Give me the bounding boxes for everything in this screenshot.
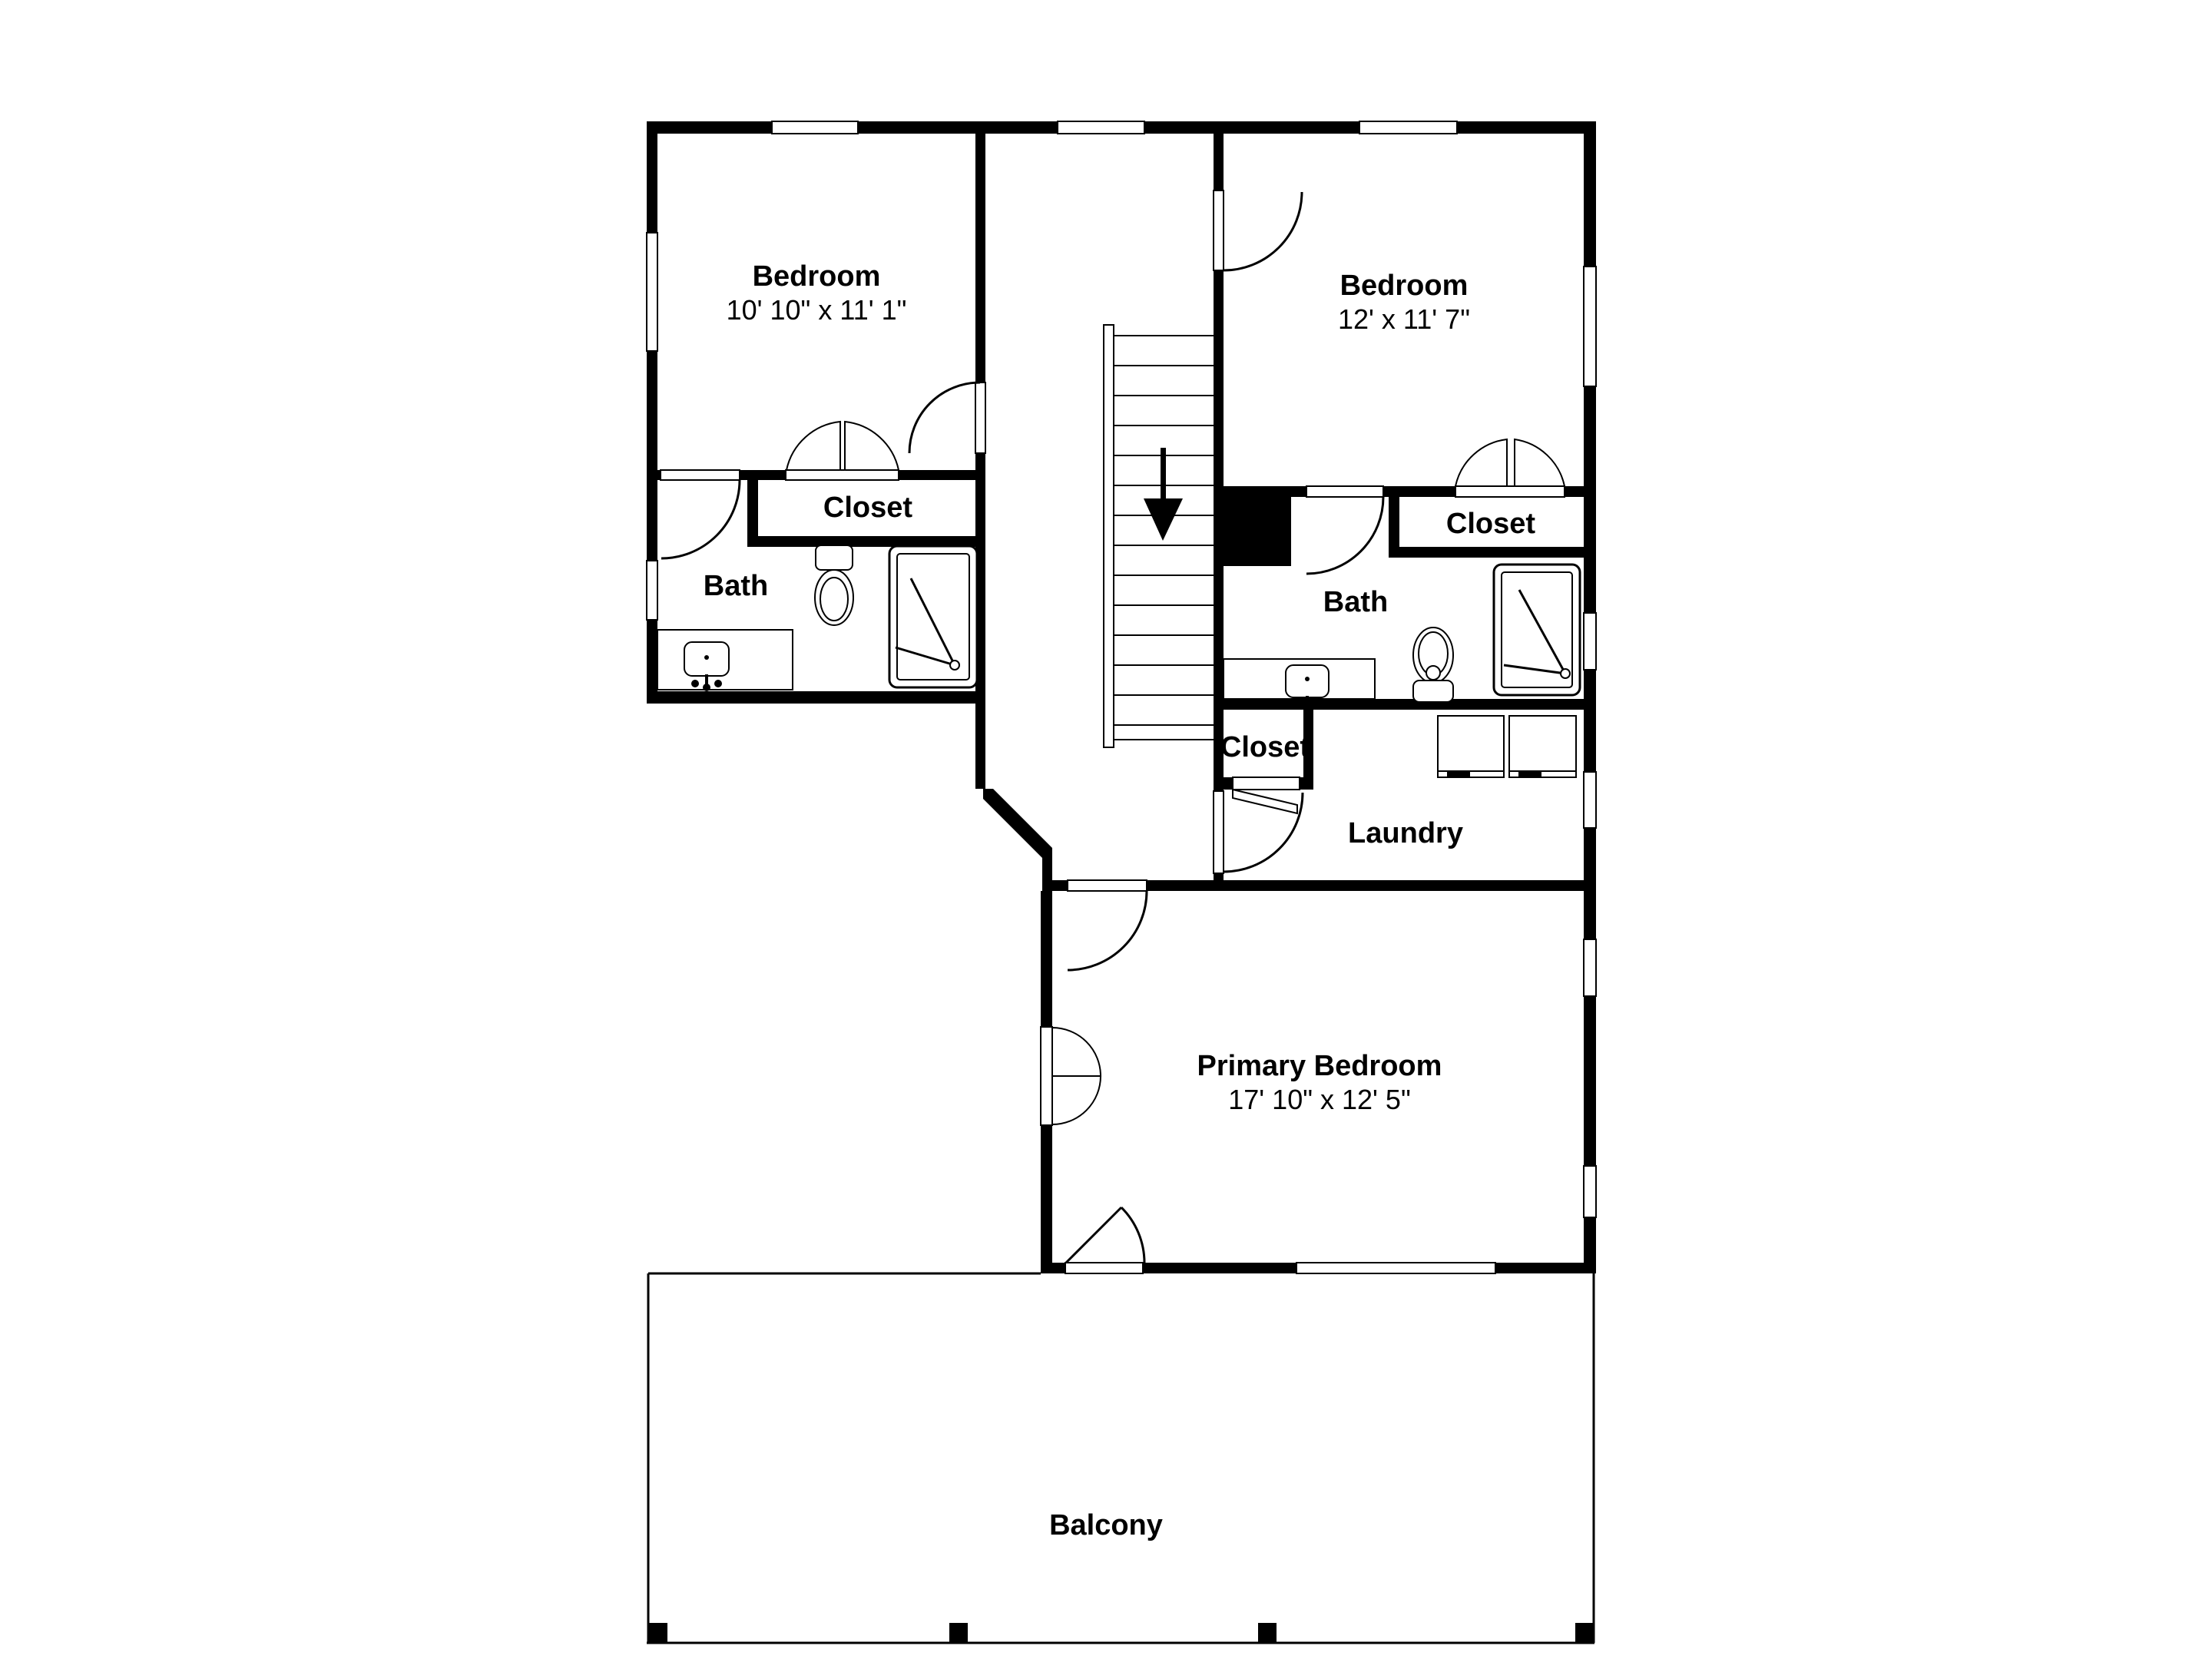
balcony-post [949, 1623, 968, 1643]
window-right-primary-upper [1584, 939, 1596, 996]
room-label-bedroom2: Bedroom [1340, 270, 1469, 302]
door-leaf-bath1 [661, 470, 740, 480]
door-leaf-balcony [1065, 1263, 1143, 1273]
door-leaf-bath2 [1306, 486, 1383, 497]
room-label-closet1: Closet [823, 492, 912, 524]
room-label-bath2: Bath [1323, 586, 1388, 618]
door-leaf-closet1 [786, 470, 899, 480]
room-dims-bedroom2: 12' x 11' 7" [1338, 303, 1470, 335]
door-leaf-laundry [1214, 791, 1224, 873]
window-bottom-primary [1296, 1263, 1495, 1273]
shower-icon [1494, 565, 1580, 695]
room-label-closet3: Closet [1220, 731, 1310, 763]
window-right-bedroom2 [1584, 267, 1596, 386]
toilet-icon [815, 545, 853, 625]
window-top-bedroom2 [1359, 121, 1457, 134]
washer-icon [1438, 716, 1504, 778]
door-leaf-bedroom1 [975, 382, 985, 453]
balcony-post [649, 1623, 667, 1643]
balcony-post [1258, 1623, 1277, 1643]
room-label-bedroom1: Bedroom [753, 260, 881, 293]
room-dims-bedroom1: 10' 10" x 11' 1" [727, 294, 907, 326]
room-label-laundry: Laundry [1348, 817, 1463, 849]
stair-stringer [1104, 325, 1114, 747]
shower-icon [889, 546, 977, 687]
dryer-icon [1509, 716, 1576, 778]
room-label-primary: Primary Bedroom [1197, 1050, 1442, 1082]
room-label-closet2: Closet [1446, 508, 1535, 540]
window-right-bath2 [1584, 613, 1596, 670]
window-right-laundry [1584, 772, 1596, 828]
room-label-bath1: Bath [704, 570, 768, 602]
window-left-bath1 [647, 561, 657, 620]
door-leaf-bedroom2 [1214, 190, 1224, 270]
door-leaf-primary-west [1041, 1027, 1052, 1125]
door-leaf-closet2 [1455, 486, 1565, 497]
door-leaf-primary [1068, 880, 1147, 891]
window-right-primary-lower [1584, 1166, 1596, 1217]
room-dims-primary: 17' 10" x 12' 5" [1228, 1084, 1410, 1115]
page-background [0, 0, 2212, 1659]
toilet-icon [1413, 628, 1453, 702]
window-left-bedroom1 [647, 233, 657, 351]
room-label-balcony: Balcony [1049, 1509, 1163, 1541]
floor-plan: Bedroom 10' 10" x 11' 1" Bedroom 12' x 1… [0, 0, 2212, 1659]
window-top-bedroom1 [772, 121, 858, 134]
shaft-block [1224, 497, 1291, 566]
door-leaf-closet3 [1233, 777, 1300, 790]
window-top-hall [1058, 121, 1144, 134]
balcony-post [1575, 1623, 1594, 1643]
